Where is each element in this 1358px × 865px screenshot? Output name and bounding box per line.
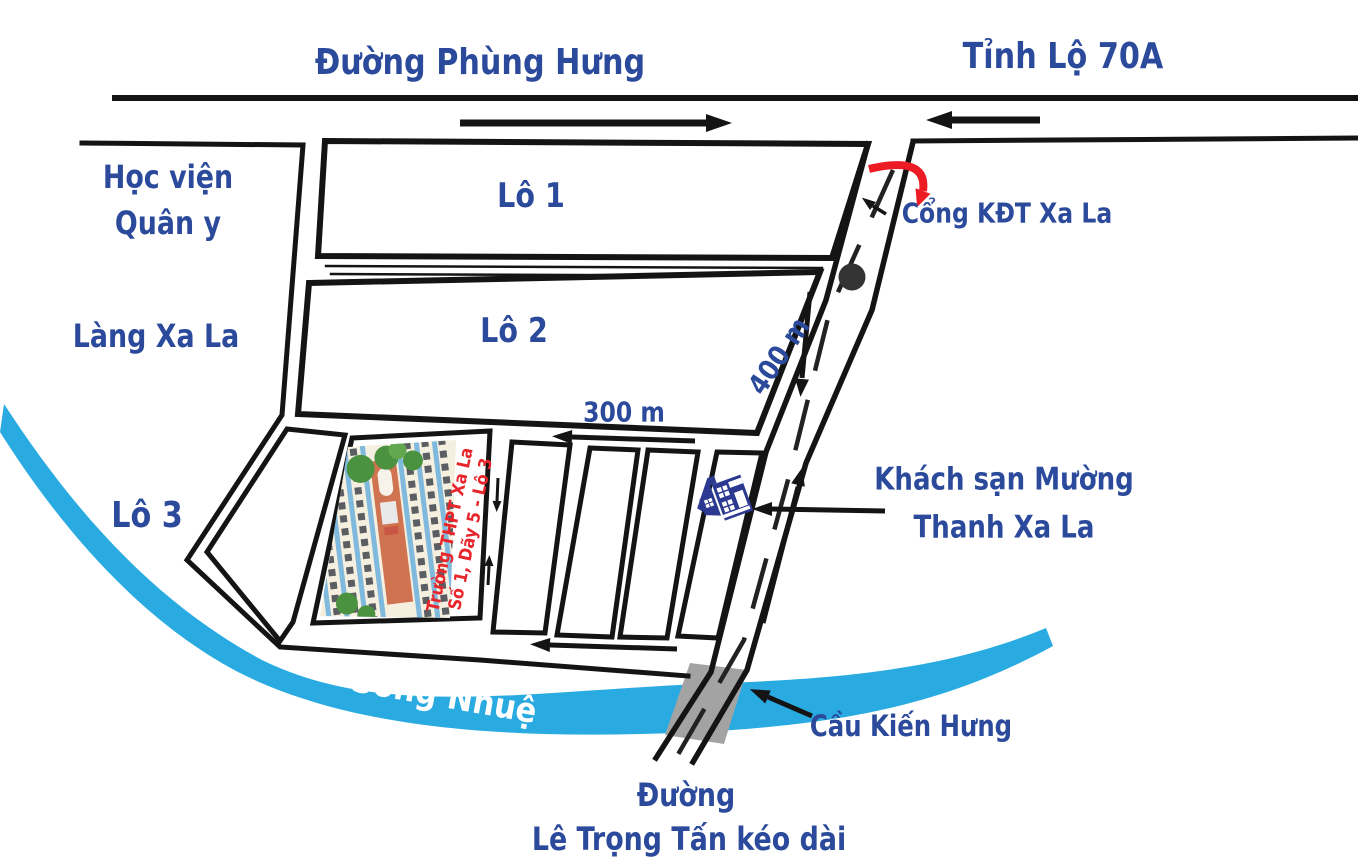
arrow-70a-westbound: [926, 111, 1040, 129]
label-cong-kdt-xa-la: Cổng KĐT Xa La: [902, 198, 1112, 227]
label-duong-phung-hung: Đường Phùng Hưng: [315, 44, 645, 82]
label-le-trong-tan: Lê Trọng Tấn kéo dài: [532, 823, 846, 857]
block-lo-2: [298, 272, 820, 433]
label-khach-san-line1: Khách sạn Mường: [874, 464, 1134, 497]
arrow-phung-hung-eastbound: [460, 114, 732, 132]
plot-row-1: [493, 442, 570, 633]
road-dot-marker: [839, 264, 866, 291]
arrow-hotel-pointer: [752, 502, 885, 516]
route-map: Đường Phùng Hưng Tỉnh Lộ 70A Học viện Qu…: [0, 0, 1358, 865]
label-khach-san-line2: Thanh Xa La: [914, 512, 1095, 545]
label-lo-1: Lô 1: [497, 179, 565, 215]
road-70a-south-edge: [913, 138, 1358, 141]
label-duong-bottom: Đường: [637, 779, 736, 813]
block-lo-1: [318, 141, 868, 258]
map-linework: [0, 0, 1358, 865]
label-cau-kien-hung: Cầu Kiến Hưng: [810, 711, 1012, 741]
label-lo-2: Lô 2: [480, 314, 548, 350]
label-lang-xa-la: Làng Xa La: [73, 320, 239, 354]
label-tinh-lo-70a: Tỉnh Lộ 70A: [963, 38, 1164, 76]
label-distance-300m: 300 m: [583, 397, 665, 426]
alley-line-upper: [326, 266, 822, 268]
label-hoc-vien: Học viện: [103, 161, 233, 195]
arrow-lane-up: [485, 555, 494, 585]
arrow-lane-down: [492, 478, 501, 512]
label-quan-y: Quân y: [115, 207, 221, 241]
label-lo-3: Lô 3: [111, 497, 183, 535]
